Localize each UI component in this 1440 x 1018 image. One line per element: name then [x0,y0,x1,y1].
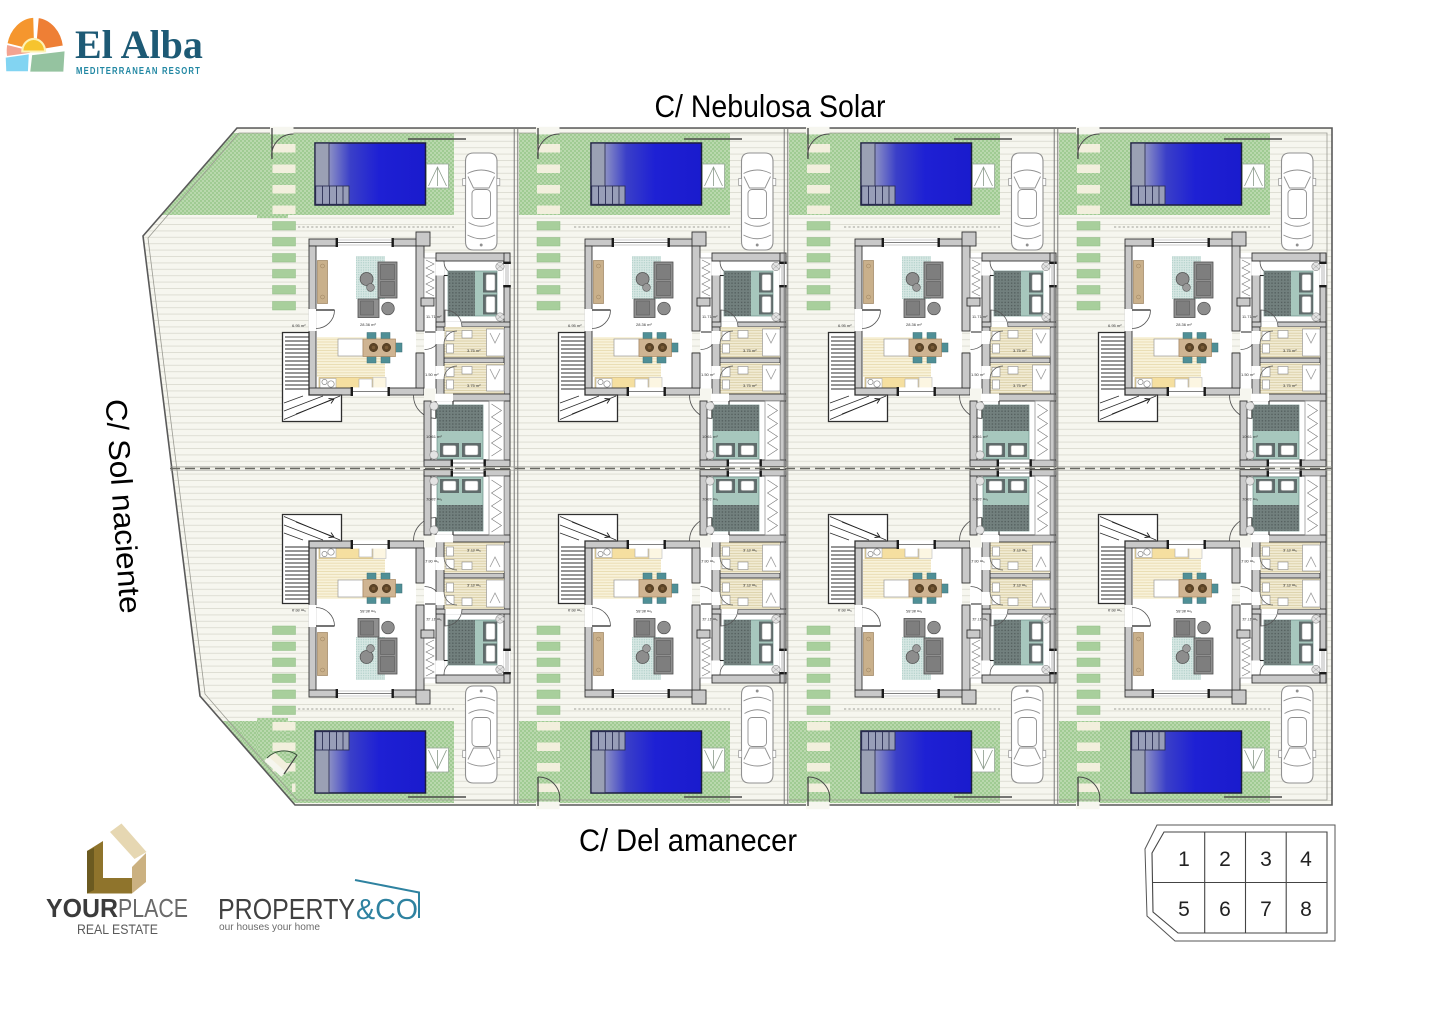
svg-text:C/ Del amanecer: C/ Del amanecer [579,822,797,858]
svg-text:8: 8 [1300,898,1312,921]
svg-text:&CO: &CO [356,894,418,926]
svg-text:6: 6 [1219,898,1231,921]
svg-text:our houses your home: our houses your home [219,922,320,933]
svg-text:C/ Nebulosa Solar: C/ Nebulosa Solar [655,88,886,124]
svg-text:2: 2 [1219,848,1231,871]
svg-text:3: 3 [1260,848,1272,871]
svg-text:7: 7 [1260,898,1272,921]
svg-text:PLACE: PLACE [118,893,188,923]
svg-text:MEDITERRANEAN RESORT: MEDITERRANEAN RESORT [76,66,201,77]
svg-text:1: 1 [1178,848,1190,871]
svg-text:5: 5 [1178,898,1190,921]
svg-text:YOUR: YOUR [46,893,118,923]
svg-text:El Alba: El Alba [75,22,203,67]
svg-text:4: 4 [1300,848,1312,871]
svg-text:REAL ESTATE: REAL ESTATE [77,921,158,937]
